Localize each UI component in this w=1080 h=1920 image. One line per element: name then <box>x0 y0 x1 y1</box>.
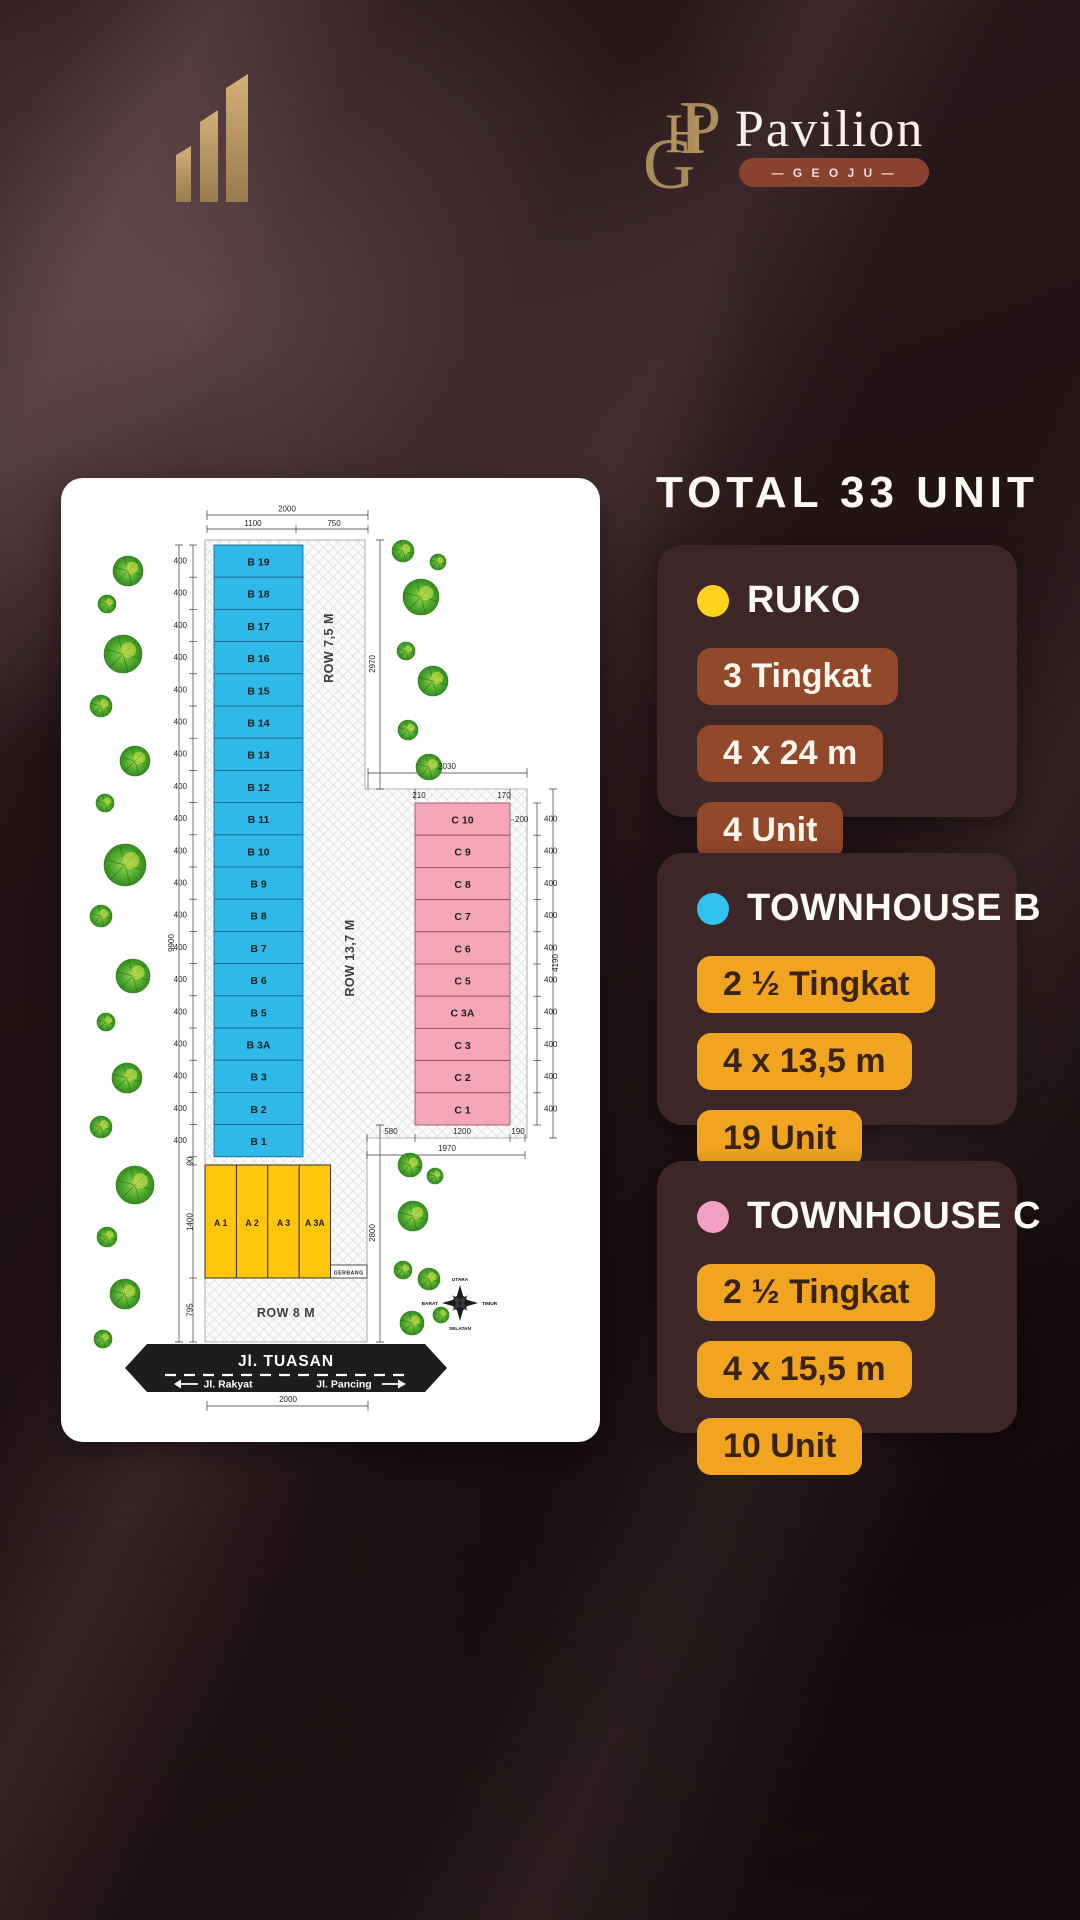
tree-icon <box>394 1261 412 1279</box>
tree-highlight <box>104 797 111 804</box>
tree-highlight <box>100 1120 109 1129</box>
dim-right-tick-label: 400 <box>544 1040 558 1049</box>
spec-pill: 4 x 13,5 m <box>697 1033 912 1090</box>
unit-label: B 7 <box>250 943 267 955</box>
dim-top-total: 2000 <box>278 505 296 514</box>
unit-label: B 9 <box>250 879 267 891</box>
dim-left-total: 9900 <box>167 934 176 952</box>
dim-left-tick-label: 400 <box>174 814 188 823</box>
unit-label: B 17 <box>247 621 269 633</box>
dim-left-tick-label: 400 <box>174 1136 188 1145</box>
dim-left-tick-label: 400 <box>174 1072 188 1081</box>
legend-card-townhouse-c: TOWNHOUSE C2 ½ Tingkat4 x 15,5 m10 Unit <box>657 1161 1017 1433</box>
unit-label: B 3 <box>250 1072 267 1084</box>
dim-c-sub-right: 170 <box>497 791 511 800</box>
tree-highlight <box>133 752 145 764</box>
dim-left-tick-label: 400 <box>174 782 188 791</box>
monogram-letter-p: P <box>679 90 721 166</box>
siteplan-drawing: B 19B 18B 17B 16B 15B 14B 13B 12B 11B 10… <box>61 478 600 1442</box>
legend-card-title: RUKO <box>747 579 861 622</box>
dim-left-tick-label: 400 <box>174 750 188 759</box>
legend-card-ruko: RUKO3 Tingkat4 x 24 m4 Unit <box>657 545 1017 817</box>
dim-left-tick-label: 400 <box>174 846 188 855</box>
tree-icon <box>120 746 150 776</box>
logo-bar-tall <box>226 74 248 202</box>
brand-lockup: G H P Pavilion — G E O J U — <box>643 92 973 202</box>
dim-left-tick-label: 400 <box>174 1007 188 1016</box>
dim-left-tick-label: 400 <box>174 718 188 727</box>
tree-highlight <box>126 562 138 574</box>
legend-card-townhouse-b: TOWNHOUSE B2 ½ Tingkat4 x 13,5 m19 Unit <box>657 853 1017 1125</box>
dim-bottom-mid: 1200 <box>453 1127 471 1136</box>
bars-logo-icon <box>176 70 268 202</box>
unit-label: C 9 <box>454 847 471 859</box>
dim-bottom-total: 1970 <box>438 1144 456 1153</box>
unit-label: B 3A <box>247 1040 271 1052</box>
compass-east-label: TIMUR <box>482 1301 498 1307</box>
tree-icon <box>104 635 142 673</box>
brand-badge: — G E O J U — <box>739 158 929 187</box>
tree-highlight <box>106 1231 114 1239</box>
unit-label: B 18 <box>247 589 269 601</box>
unit-label: B 5 <box>250 1007 267 1019</box>
unit-label: B 15 <box>247 685 269 697</box>
dim-left-tick-label: 400 <box>174 589 188 598</box>
legend-card-header: TOWNHOUSE B <box>697 887 987 930</box>
logo-bar-small <box>176 146 191 202</box>
dim-right-bottom: 2800 <box>368 1224 377 1242</box>
tree-icon <box>97 1013 115 1031</box>
ruko-block: A 1A 2A 3A 3A <box>205 1165 331 1278</box>
townhouse-b-dot-icon <box>697 893 729 925</box>
tree-highlight <box>122 852 139 869</box>
townhouse-c-dot-icon <box>697 1201 729 1233</box>
unit-label: B 10 <box>247 846 269 858</box>
dim-right-tick-label: 400 <box>544 1008 558 1017</box>
tree-highlight <box>427 759 437 769</box>
dim-right-tick-label: 400 <box>544 1104 558 1113</box>
brand-name: Pavilion <box>735 100 924 159</box>
unit-label: B 12 <box>247 782 269 794</box>
tree-icon <box>433 1307 449 1323</box>
unit-label: B 1 <box>250 1136 267 1148</box>
tree-icon <box>94 1330 112 1348</box>
tree-highlight <box>125 1069 137 1081</box>
townhouse-c-block: C 10C 9C 8C 7C 6C 5C 3AC 3C 2C 1 <box>415 803 510 1125</box>
tree-highlight <box>105 1016 112 1023</box>
spec-pill: 19 Unit <box>697 1110 862 1167</box>
dim-bottom-right: 190 <box>511 1127 525 1136</box>
tree-icon <box>116 959 150 993</box>
spec-pill: 3 Tingkat <box>697 648 898 705</box>
unit-label: C 7 <box>454 911 471 923</box>
dim-left-tick-label: 400 <box>174 621 188 630</box>
row-8-label: ROW 8 M <box>257 1306 315 1320</box>
compass-north-label: UTARA <box>452 1277 469 1283</box>
spec-pill: 4 x 15,5 m <box>697 1341 912 1398</box>
dim-a-height: 1400 <box>186 1213 195 1231</box>
road-right-label: Jl. Pancing <box>316 1379 371 1391</box>
dim-top-left: 1100 <box>244 519 262 528</box>
gate: GERBANG <box>331 1265 368 1278</box>
spec-pill: 2 ½ Tingkat <box>697 956 935 1013</box>
ghp-monogram-icon: G H P <box>643 94 738 202</box>
dim-left-tick-label: 400 <box>174 879 188 888</box>
unit-label: B 6 <box>250 975 267 987</box>
tree-icon <box>398 720 418 740</box>
tree-highlight <box>409 1158 419 1168</box>
road-banner: Jl. TUASAN Jl. Rakyat Jl. Pancing <box>125 1344 447 1392</box>
unit-label: C 3 <box>454 1040 471 1052</box>
townhouse-b-block: B 19B 18B 17B 16B 15B 14B 13B 12B 11B 10… <box>214 545 303 1157</box>
tree-highlight <box>133 1173 148 1188</box>
siteplan-card: B 19B 18B 17B 16B 15B 14B 13B 12B 11B 10… <box>61 478 600 1442</box>
dim-left-tick-label: 400 <box>174 685 188 694</box>
dim-road-total: 2000 <box>279 1395 297 1404</box>
tree-icon <box>90 1116 112 1138</box>
tree-highlight <box>437 557 443 563</box>
spec-pill: 4 x 24 m <box>697 725 883 782</box>
dim-c-right-small: 200 <box>515 815 529 824</box>
tree-icon <box>392 540 414 562</box>
road-left-label: Jl. Rakyat <box>203 1379 253 1391</box>
unit-label: B 2 <box>250 1104 267 1116</box>
tree-highlight <box>106 598 113 605</box>
tree-highlight <box>405 645 412 652</box>
unit-label: B 13 <box>247 750 269 762</box>
tree-highlight <box>121 642 136 657</box>
unit-label: B 19 <box>247 557 269 569</box>
tree-icon <box>116 1166 154 1204</box>
legend-card-header: RUKO <box>697 579 987 622</box>
unit-label: C 8 <box>454 879 471 891</box>
flyer-background: G H P Pavilion — G E O J U — TOTAL 33 UN… <box>0 0 1080 1920</box>
tree-icon <box>90 695 112 717</box>
tree-icon <box>398 1153 422 1177</box>
row-13-7-label: ROW 13,7 M <box>343 919 357 996</box>
tree-icon <box>397 642 415 660</box>
unit-label: C 6 <box>454 943 471 955</box>
dim-right-tick-label: 400 <box>544 815 558 824</box>
tree-icon <box>400 1311 424 1335</box>
road-name-label: Jl. TUASAN <box>238 1353 334 1370</box>
legend-card-header: TOWNHOUSE C <box>697 1195 987 1238</box>
tree-icon <box>112 1063 142 1093</box>
tree-highlight <box>434 1171 440 1177</box>
dim-right-tick-label: 400 <box>544 911 558 920</box>
unit-label: B 11 <box>248 814 270 826</box>
tree-highlight <box>102 1333 109 1340</box>
dim-left-tick-label: 400 <box>174 1104 188 1113</box>
dim-left-tick-label: 400 <box>174 557 188 566</box>
unit-label: B 16 <box>247 653 269 665</box>
tree-icon <box>96 794 114 812</box>
dim-right-tick-label: 400 <box>544 847 558 856</box>
tree-icon <box>430 554 446 570</box>
tree-highlight <box>431 672 443 684</box>
tree-icon <box>104 844 146 886</box>
tree-highlight <box>411 1207 423 1219</box>
dim-bottom-left: 580 <box>384 1127 398 1136</box>
unit-label: C 3A <box>451 1008 475 1020</box>
tree-icon <box>418 666 448 696</box>
legend-card-title: TOWNHOUSE B <box>747 887 1041 930</box>
unit-label: A 3A <box>305 1218 325 1228</box>
tree-highlight <box>123 1285 135 1297</box>
dim-c-top-total: 2030 <box>438 762 456 771</box>
logo-bar-medium <box>200 110 218 202</box>
tree-highlight <box>131 965 145 979</box>
legend-cards: RUKO3 Tingkat4 x 24 m4 UnitTOWNHOUSE B2 … <box>657 545 1017 1433</box>
spec-pill: 10 Unit <box>697 1418 862 1475</box>
tree-highlight <box>440 1310 446 1316</box>
spec-pill: 2 ½ Tingkat <box>697 1264 935 1321</box>
tree-icon <box>98 595 116 613</box>
tree-highlight <box>411 1316 421 1326</box>
dim-left-tick-label: 400 <box>174 911 188 920</box>
tree-icon <box>418 1268 440 1290</box>
unit-label: C 5 <box>454 976 471 988</box>
dim-right-tick-label: 400 <box>544 943 558 952</box>
unit-label: B 8 <box>250 911 267 923</box>
tree-highlight <box>407 724 415 732</box>
dim-left-tick-label: 400 <box>174 1040 188 1049</box>
tree-highlight <box>419 586 433 600</box>
dim-c-height: 4190 <box>551 954 560 972</box>
unit-label: C 2 <box>454 1072 471 1084</box>
tree-icon <box>90 905 112 927</box>
unit-label: A 2 <box>245 1218 258 1228</box>
dim-gap-b-a: 90 <box>186 1156 195 1165</box>
tree-icon <box>110 1279 140 1309</box>
compass-south-label: SELATAN <box>449 1326 471 1332</box>
dim-right-tick-label: 400 <box>544 1072 558 1081</box>
dim-c-sub-left: 210 <box>412 791 426 800</box>
unit-label: C 10 <box>451 815 473 827</box>
total-units-title: TOTAL 33 UNIT <box>656 468 1039 518</box>
tree-icon <box>97 1227 117 1247</box>
dim-top-right: 750 <box>327 519 341 528</box>
unit-label: A 1 <box>214 1218 227 1228</box>
tree-highlight <box>100 699 109 708</box>
tree-icon <box>403 579 439 615</box>
tree-highlight <box>402 1264 409 1271</box>
tree-highlight <box>402 544 411 553</box>
tree-highlight <box>100 909 109 918</box>
dim-right-top: 2970 <box>368 655 377 673</box>
dim-right-tick-label: 400 <box>544 976 558 985</box>
tree-highlight <box>428 1272 437 1281</box>
dim-left-tick-label: 400 <box>174 653 188 662</box>
dim-row8-height: 795 <box>186 1303 195 1317</box>
unit-label: B 14 <box>247 718 269 730</box>
legend-card-title: TOWNHOUSE C <box>747 1195 1041 1238</box>
dim-right-tick-label: 400 <box>544 879 558 888</box>
row-7-5-label: ROW 7,5 M <box>322 613 336 683</box>
unit-label: C 1 <box>454 1104 471 1116</box>
tree-icon <box>398 1201 428 1231</box>
gate-label: GERBANG <box>334 1271 364 1277</box>
tree-icon <box>427 1168 443 1184</box>
tree-icon <box>113 556 143 586</box>
compass-west-label: BARAT <box>422 1301 439 1307</box>
spec-pill: 4 Unit <box>697 802 843 859</box>
dim-left-tick-label: 400 <box>174 975 188 984</box>
ruko-dot-icon <box>697 585 729 617</box>
unit-label: A 3 <box>277 1218 290 1228</box>
